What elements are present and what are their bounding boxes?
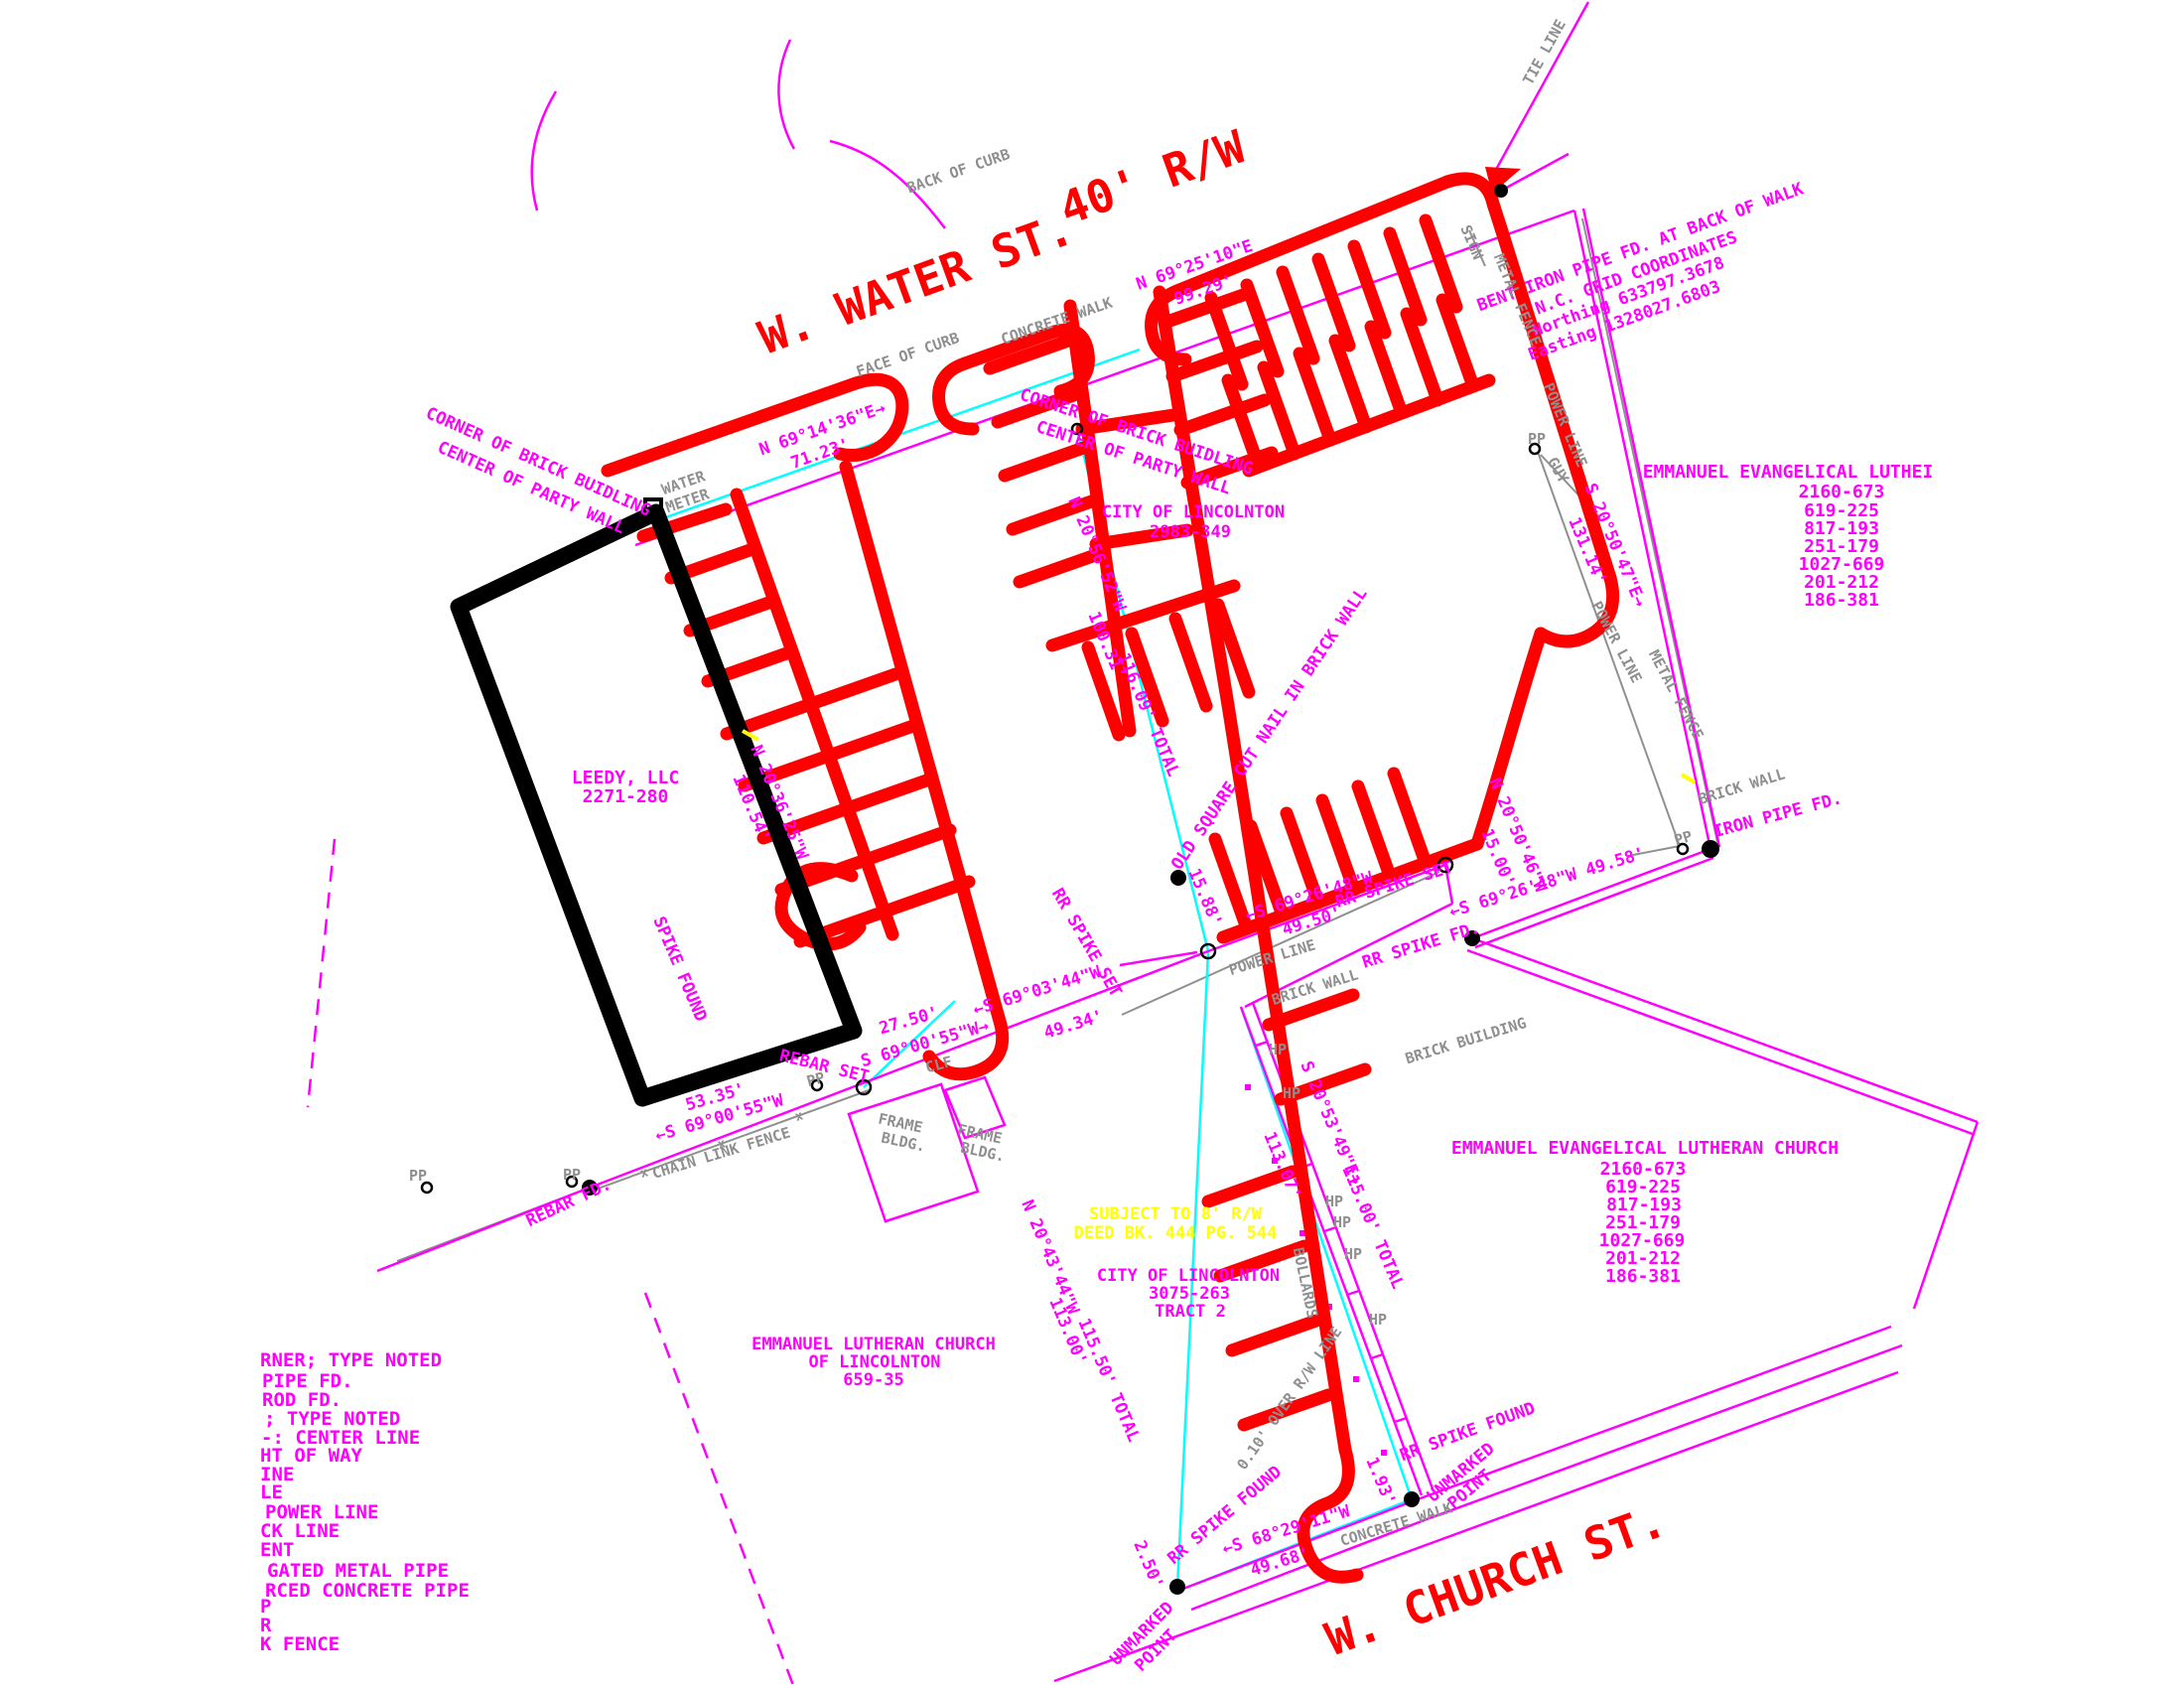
iron-pipe-found-monument <box>1702 840 1719 858</box>
sign: SIGN <box>1456 222 1487 262</box>
hp-4: HP <box>1333 1213 1351 1231</box>
city-top-1: CITY OF LINCOLNTON <box>1102 502 1285 522</box>
hp-1: HP <box>1269 1041 1287 1058</box>
leedy-2: 2271-280 <box>583 786 669 807</box>
brick-wall-right: BRICK WALL <box>1697 765 1788 808</box>
legend-11: ENT <box>260 1539 294 1561</box>
spike-found-v: SPIKE FOUND <box>648 914 710 1024</box>
legend-1: RNER; TYPE NOTED <box>260 1349 442 1371</box>
ne-owner-r7: 186-381 <box>1804 590 1879 611</box>
dist-11550: 115.50' TOTAL <box>1073 1316 1143 1445</box>
elc-3: 659-35 <box>843 1370 903 1390</box>
city-bot-2: 3075-263 <box>1149 1284 1230 1304</box>
old-square-cut-nail: OLD SQUARE CUT NAIL IN BRICK WALL <box>1167 585 1371 874</box>
legend-13: RCED CONCRETE PIPE <box>265 1580 470 1602</box>
pp-top: PP <box>1528 430 1546 448</box>
legend-8: LE <box>260 1481 283 1503</box>
leedy-1: LEEDY, LLC <box>572 768 679 788</box>
plat-canvas: W. WATER ST.40' R/WW. CHURCH ST.BENT IRO… <box>0 0 2184 1688</box>
fence-x-1: x <box>638 1165 650 1182</box>
brick-building: BRICK BUILDING <box>1403 1014 1528 1067</box>
hp-2: HP <box>1283 1084 1300 1102</box>
rw-40: 40' R/W <box>1052 119 1252 235</box>
hp-6: HP <box>1369 1311 1387 1329</box>
legend-12: GATED METAL PIPE <box>267 1560 449 1582</box>
elc-1: EMMANUEL LUTHERAN CHURCH <box>751 1335 996 1354</box>
pp-left: PP <box>409 1167 427 1185</box>
fence-x-3: x <box>793 1108 805 1125</box>
ne-owner-title: EMMANUEL EVANGELICAL LUTHEI <box>1643 462 1934 483</box>
se-owner-r7: 186-381 <box>1605 1266 1681 1287</box>
unmarked-point-monument-left <box>1169 1579 1185 1595</box>
survey-plat-drawing: W. WATER ST.40' R/WW. CHURCH ST.BENT IRO… <box>0 0 2184 1688</box>
elc-2: OF LINCOLNTON <box>808 1352 940 1372</box>
rr-spike-fd-1: RR SPIKE FD. <box>1360 918 1482 973</box>
city-bot-1: CITY OF LINCOLNTON <box>1097 1266 1280 1286</box>
unmarked-point-monument-right <box>1404 1491 1420 1507</box>
power-line-top: POWER LINE <box>1540 380 1591 470</box>
bent-iron-pipe-monument <box>1494 184 1508 198</box>
dist-193: 1.93' <box>1361 1455 1399 1509</box>
dist-250: 2.50' <box>1129 1538 1166 1593</box>
ne-owner-r1: 2160-673 <box>1799 482 1885 502</box>
metal-fence-right: METAL FENCE <box>1645 647 1707 743</box>
se-owner-title: EMMANUEL EVANGELICAL LUTHERAN CHURCH <box>1451 1138 1839 1159</box>
subject-rw-2: DEED BK. 444 PG. 544 <box>1074 1223 1278 1243</box>
city-bot-3: TRACT 2 <box>1155 1302 1226 1322</box>
subject-rw-1: SUBJECT TO 8' R/W <box>1089 1204 1263 1224</box>
hp-3: HP <box>1325 1193 1343 1210</box>
dist-1588: 15.88' <box>1183 866 1225 929</box>
gray-feature-lines <box>397 218 1717 1261</box>
back-of-curb: BACK OF CURB <box>904 145 1012 197</box>
legend-16: K FENCE <box>260 1633 340 1655</box>
city-top-2: 2983-349 <box>1150 522 1231 542</box>
pp-ironpipe: PP <box>1672 827 1695 849</box>
hp-5: HP <box>1344 1245 1362 1263</box>
pp-chainlink: PP <box>563 1166 581 1184</box>
